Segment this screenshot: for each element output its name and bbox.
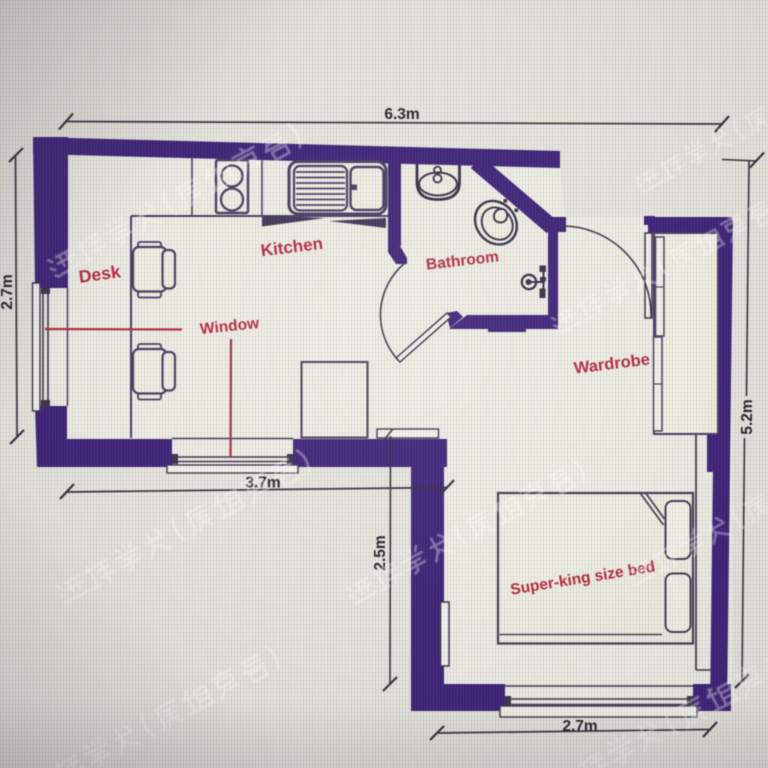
- svg-text:2.7m: 2.7m: [0, 274, 16, 309]
- svg-text:5.2m: 5.2m: [739, 399, 756, 434]
- svg-text:2.7m: 2.7m: [562, 718, 597, 735]
- svg-text:6.3m: 6.3m: [384, 106, 419, 123]
